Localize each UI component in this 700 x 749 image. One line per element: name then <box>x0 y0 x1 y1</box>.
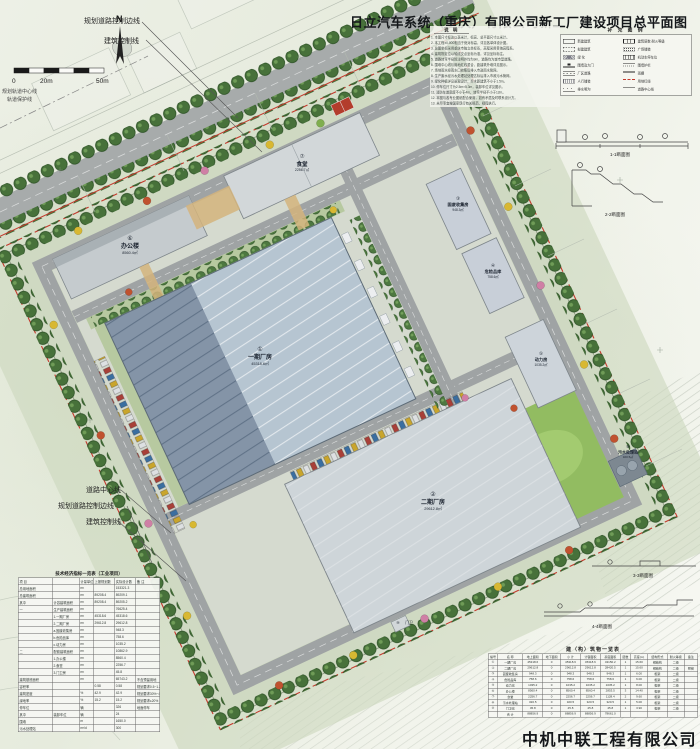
svg-text:①: ① <box>257 346 262 353</box>
legend-symbol <box>563 87 575 92</box>
legend-symbol <box>563 47 575 52</box>
legend-symbol <box>623 71 635 76</box>
callout-planned-road-edge-left: 规划道路控制边线 <box>58 501 114 511</box>
legend-item: 广场铺装 <box>623 45 689 53</box>
legend-title: 补 充 图 例 <box>560 26 692 33</box>
callout-planned-road-edge-top: 规划道路控制边线 <box>84 16 140 26</box>
legend-symbol <box>623 55 635 60</box>
svg-text:320.5㎡: 320.5㎡ <box>623 454 634 459</box>
table-row: 二配套建筑面积m²10862.9 <box>18 648 160 655</box>
callout-building-control-left: 建筑控制线 <box>86 517 121 527</box>
note-line: 13. 未尽事宜按国家现行有关规范、规程执行。 <box>431 101 559 107</box>
legend-item: 排水明沟 <box>563 85 618 93</box>
svg-text:29612.8㎡: 29612.8㎡ <box>424 506 442 511</box>
legend-label: 拟建建筑 <box>578 47 591 52</box>
legend-symbol <box>563 79 575 84</box>
table-row: 污水处理站m³/d300 <box>18 725 160 732</box>
table-row: a.固废收集房m²948.3 <box>18 627 160 634</box>
legend-label: 用地红线 <box>638 79 651 84</box>
legend-item: 人行铺装 <box>563 77 618 85</box>
section-3-label: 3-3断面图 <box>633 572 654 579</box>
legend-label: 道路中心线 <box>638 87 654 92</box>
svg-text:二期厂房: 二期厂房 <box>421 498 445 506</box>
legend-label: 绿 化 <box>578 55 585 60</box>
legend-label: 围墙及大门 <box>578 63 594 68</box>
svg-text:一期厂房: 一期厂房 <box>248 353 272 361</box>
table-row: 绿地率%15.215.2规划要求≤20% <box>18 697 160 704</box>
section-diagram-2 <box>572 163 663 207</box>
callout-rail-protection: 轨道保护线 <box>7 96 32 103</box>
scale-50m: 50m <box>96 78 109 85</box>
notes-title: 说 明 <box>434 27 469 34</box>
svg-text:危险品库: 危险品库 <box>484 268 503 275</box>
svg-text:8560.4㎡: 8560.4㎡ <box>122 250 138 255</box>
table-row: 总用地面积m²153321.3 <box>18 585 160 592</box>
tech-table: 项 目计量单位上报规划数实际设计数备 注总用地面积m²153321.3总建筑面积… <box>18 578 160 733</box>
svg-text:⑨: ⑨ <box>396 621 400 625</box>
scale-20m: 20m <box>40 78 53 85</box>
table-row: 合 计88856.9088856.988856.978661.0 <box>488 711 698 717</box>
svg-text:1035.2㎡: 1035.2㎡ <box>535 362 549 367</box>
svg-text:⑧: ⑧ <box>626 444 630 449</box>
legend-symbol <box>563 71 575 76</box>
design-company-name: 中机中联工程有限公司 <box>522 726 697 749</box>
table-row: 建筑密度%42.942.9规划要求30%~45% <box>18 690 160 697</box>
legend-item: 机动车停车位 <box>623 53 689 61</box>
tech-indicators-table: 技术经济指标一览表（工业项目） 项 目计量单位上报规划数实际设计数备 注总用地面… <box>18 570 160 749</box>
svg-text:2256.7㎡: 2256.7㎡ <box>295 167 310 172</box>
table-row: 一生产建筑面积m²76625.4 <box>18 606 160 613</box>
legend-label: 围墙护栏 <box>638 63 651 68</box>
table-row: 项 目计量单位上报规划数实际设计数备 注 <box>18 578 160 585</box>
table-row: 3.门卫房m²45.8 <box>18 669 160 676</box>
callout-building-control-top: 建筑控制线 <box>104 36 139 46</box>
svg-text:③: ③ <box>456 196 460 201</box>
table-row: 2.食堂m²2256.7 <box>18 662 160 669</box>
tech-table-title: 技术经济指标一览表（工业项目） <box>18 570 160 577</box>
legend-item: 雨棚 <box>623 69 689 77</box>
legend-item: 新建建筑 <box>563 37 618 45</box>
legend-symbol <box>563 55 575 60</box>
scale-0: 0 <box>12 78 16 85</box>
legend-symbol <box>623 79 635 84</box>
table-row: 建筑基底面积m²65743.2不含预留用地 <box>18 676 160 683</box>
table-row: 停车位辆326地面停车 <box>18 704 160 711</box>
legend-symbol <box>623 47 635 52</box>
legend-label: 建筑层数·耐火等级 <box>638 39 665 44</box>
svg-text:固废收集房: 固废收集房 <box>448 201 469 208</box>
table-row: 容积率0.580.58规划要求0.5~1.2 <box>18 683 160 690</box>
table-row: 2.二期厂房m²29612.829612.8 <box>18 620 160 627</box>
section-4-label: 4-4断面图 <box>592 623 613 630</box>
svg-text:948.3㎡: 948.3㎡ <box>452 207 464 212</box>
legend-item: 道路中心线 <box>623 85 689 93</box>
table-row: 1.一期厂房m²45318.645318.6 <box>18 613 160 620</box>
legend-label: 人行铺装 <box>578 79 591 84</box>
svg-text:⑦: ⑦ <box>300 153 305 160</box>
svg-text:②: ② <box>430 491 436 498</box>
legend-label: 机动车停车位 <box>638 55 658 60</box>
legend-symbol <box>563 39 575 44</box>
legend-block: 补 充 图 例 新建建筑 拟建建筑 绿 化 围墙及大门 厂区道路 人行铺装 排水… <box>560 26 692 165</box>
svg-text:⑤: ⑤ <box>539 351 543 356</box>
table-row: 其中装卸车位辆24 <box>18 711 160 718</box>
svg-text:动力房: 动力房 <box>535 356 548 363</box>
table-row: 围墙m1650.0 <box>18 718 160 725</box>
legend-label: 雨棚 <box>638 71 645 76</box>
bld-table-title: 建（构）筑物一览表 <box>488 645 698 653</box>
legend-symbol <box>623 63 635 68</box>
bld-table: 编号名 称地上面积地下面积小 计计容面积基底面积层数高度(m)结构形式耐火等级备… <box>488 654 698 718</box>
legend-item: 厂区道路 <box>563 69 618 77</box>
table-row: 1.办公楼m²8560.4 <box>18 655 160 662</box>
table-row: c.动力房m²1035.2 <box>18 641 160 648</box>
svg-text:④: ④ <box>491 263 495 268</box>
legend-item: 围墙护栏 <box>623 61 689 69</box>
drawing-sheet: N 0 20m 50m 1-1断面图 2-2断面图 3-3断面图 4-4断面图 <box>0 0 700 749</box>
table-row: 总建筑面积m²89208.489209.1 <box>18 592 160 599</box>
svg-text:758.6㎡: 758.6㎡ <box>487 274 499 279</box>
legend-label: 新建建筑 <box>578 39 591 44</box>
legend-label: 广场铺装 <box>638 47 651 52</box>
legend-label: 排水明沟 <box>578 87 591 92</box>
callout-road-centerline: 道路中心线 <box>86 485 121 495</box>
legend-item: 拟建建筑 <box>563 45 618 53</box>
svg-text:45318.6㎡: 45318.6㎡ <box>251 361 269 366</box>
table-row: b.危险品库m²758.6 <box>18 634 160 641</box>
svg-text:门卫: 门卫 <box>405 620 413 625</box>
table-row: 其中计容建筑面积m²89208.489205.2 <box>18 599 160 606</box>
svg-text:办公楼: 办公楼 <box>121 242 139 250</box>
legend-item: 建筑层数·耐火等级 <box>623 37 689 45</box>
legend-label: 厂区道路 <box>578 71 591 76</box>
legend-symbol <box>623 39 635 44</box>
legend-item: 围墙及大门 <box>563 61 618 69</box>
callout-rail-centerline: 规划轨道中心线 <box>2 88 37 95</box>
svg-text:⑥: ⑥ <box>127 235 132 242</box>
svg-text:食堂: 食堂 <box>295 160 308 168</box>
svg-text:污水处理站: 污水处理站 <box>618 449 638 455</box>
legend-item: 绿 化 <box>563 53 618 61</box>
notes-block: 说 明 1. 本图尺寸标注以毫米计，标高、总平面尺寸以米计。 2. 本工程±0.… <box>430 26 558 188</box>
label-gatehouse: ⑨ 门卫 <box>396 620 413 625</box>
legend-item: 用地红线 <box>623 77 689 85</box>
section-2-label: 2-2断面图 <box>605 211 626 218</box>
legend-symbol <box>563 63 575 68</box>
legend-symbol <box>623 87 635 92</box>
